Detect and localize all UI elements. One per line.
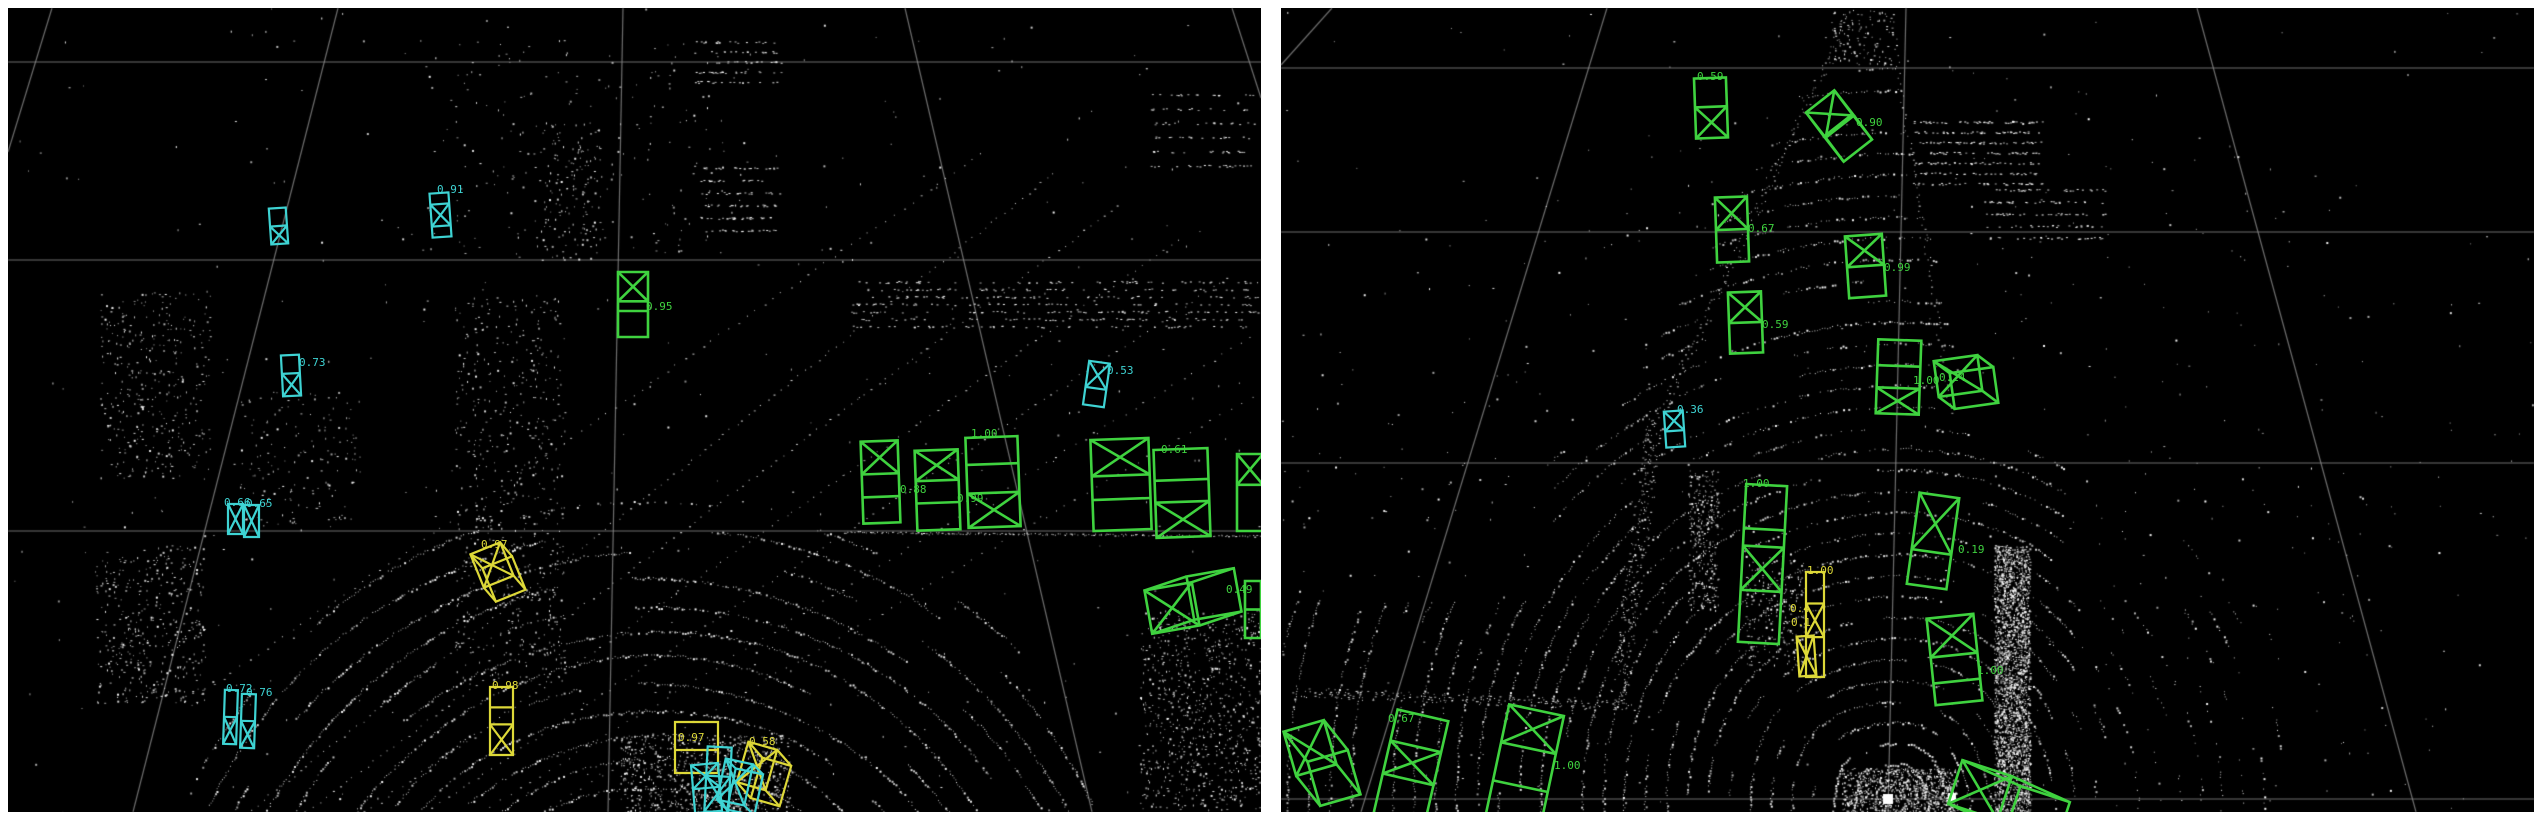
- lidar-viewer: 0.910.730.660.650.720.760.530.950.881.00…: [0, 0, 2542, 820]
- bbox-score-label: 0.97: [678, 732, 705, 743]
- bbox-score-label: 0.59: [1762, 319, 1789, 330]
- bbox-score-label: 0.90: [1856, 117, 1883, 128]
- bbox-score-label: 0.59: [1697, 71, 1724, 82]
- bbox-score-label: 1.00: [1743, 478, 1770, 489]
- bbox-score-label: 0.88: [900, 484, 927, 495]
- bbox-score-label: 0.49: [1226, 584, 1253, 595]
- bbox-score-label: 1.00: [1554, 760, 1581, 771]
- bbox-score-label: 1.00: [1807, 565, 1834, 576]
- bbox-score-label: 0.36: [1677, 404, 1704, 415]
- bbox-score-label: 1.00: [1913, 375, 1940, 386]
- bbox-score-label: 0.65: [246, 498, 273, 509]
- bbox-score-label: 0.24: [1939, 372, 1966, 383]
- bbox-score-label: 0.97: [481, 539, 508, 550]
- bbox-score-label: 0.73: [299, 357, 326, 368]
- bbox-score-label: 0.99: [1884, 262, 1911, 273]
- bbox-score-label: 0.99: [957, 493, 984, 504]
- bbox-score-label: 0.67: [1748, 223, 1775, 234]
- bbox-score-label: 0.76: [246, 687, 273, 698]
- bbox-score-label: 0.53: [1107, 365, 1134, 376]
- bbox-score-label: 0.66: [224, 497, 251, 508]
- bbox-label-layer: 0.910.730.660.650.720.760.530.950.881.00…: [0, 0, 2542, 820]
- bbox-score-label: 0.19: [1958, 544, 1985, 555]
- bbox-score-label: 0.58: [749, 736, 776, 747]
- bbox-score-label: 0.1: [1791, 617, 1811, 628]
- bbox-score-label: 0.72: [226, 683, 253, 694]
- bbox-score-label: 1.00: [1977, 665, 2004, 676]
- bbox-score-label: 0.61: [1161, 444, 1188, 455]
- bbox-score-label: 0.67: [1388, 713, 1415, 724]
- bbox-score-label: 0.95: [646, 301, 673, 312]
- bbox-score-label: 0.4: [1790, 603, 1810, 614]
- bbox-score-label: 1.00: [971, 428, 998, 439]
- bbox-score-label: 0.91: [437, 184, 464, 195]
- bbox-score-label: 0.98: [492, 680, 519, 691]
